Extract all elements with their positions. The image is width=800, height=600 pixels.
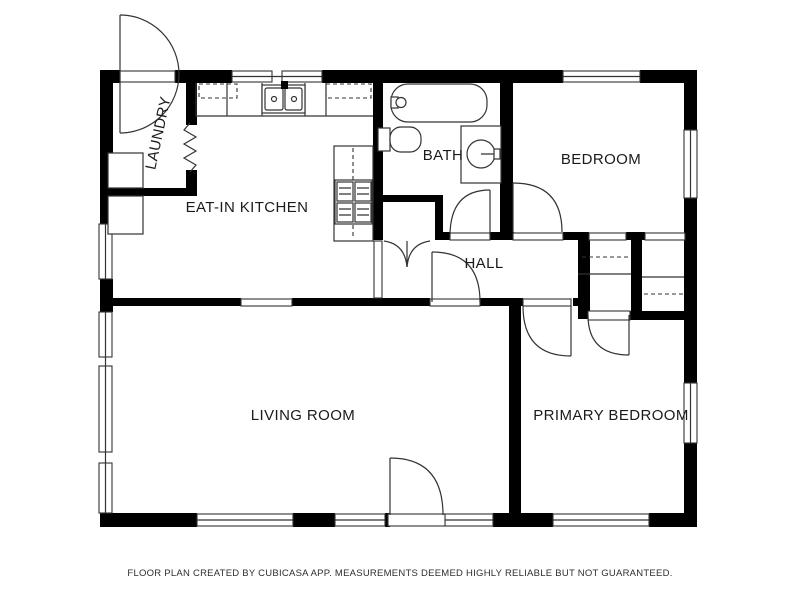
washer bbox=[108, 153, 143, 188]
bathtub bbox=[391, 84, 487, 122]
primary-bedroom-door bbox=[523, 306, 571, 356]
room-label-bedroom: BEDROOM bbox=[561, 151, 641, 168]
floor-plan-page: LAUNDRY EAT-IN KITCHEN BATH BEDROOM HALL… bbox=[0, 0, 800, 600]
primary-closet-door bbox=[588, 315, 629, 355]
front-door bbox=[390, 458, 443, 515]
room-label-hall: HALL bbox=[464, 255, 503, 272]
footer-disclaimer: FLOOR PLAN CREATED BY CUBICASA APP. MEAS… bbox=[0, 568, 800, 579]
wall-break-zigzag bbox=[184, 123, 196, 172]
vanity-sink bbox=[461, 126, 501, 183]
hall-closet-bifold-doors bbox=[384, 241, 430, 267]
refrigerator bbox=[108, 196, 143, 234]
stove bbox=[334, 146, 373, 241]
room-label-living-room: LIVING ROOM bbox=[251, 407, 355, 424]
room-label-primary-bedroom: PRIMARY BEDROOM bbox=[533, 407, 688, 424]
room-label-eat-in-kitchen: EAT-IN KITCHEN bbox=[186, 199, 309, 216]
bedroom-door bbox=[513, 183, 562, 232]
room-label-laundry: LAUNDRY bbox=[142, 95, 174, 171]
bath-door bbox=[450, 190, 490, 236]
floor-plan-svg: LAUNDRY EAT-IN KITCHEN BATH BEDROOM HALL… bbox=[0, 0, 800, 600]
room-label-bath: BATH bbox=[423, 147, 464, 164]
kitchen-sink bbox=[262, 81, 305, 113]
toilet bbox=[378, 127, 421, 152]
